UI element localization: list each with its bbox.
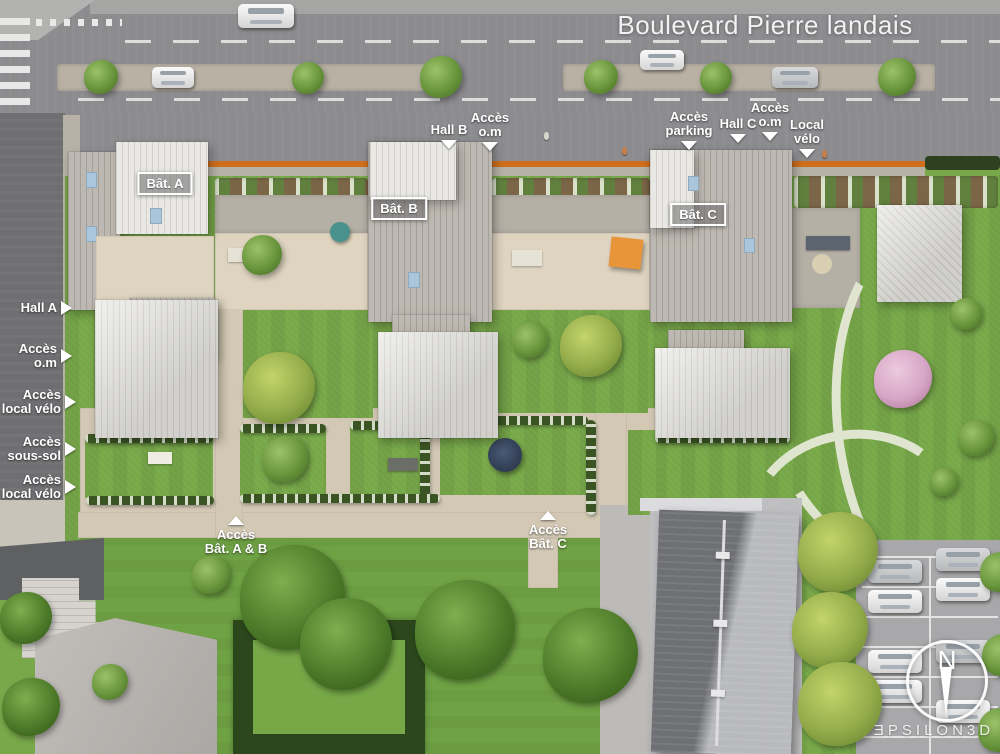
- arrow-right-icon: [61, 349, 72, 363]
- label-acces-om-a: Accèso.m: [0, 342, 72, 370]
- hedge: [586, 420, 596, 515]
- label-text: Accèso.m: [0, 342, 57, 370]
- path-vertical-west: [215, 305, 243, 538]
- label-text: Hall A: [0, 301, 57, 315]
- label-text: Accès: [529, 523, 567, 537]
- arrow-right-icon: [65, 442, 76, 456]
- arrow-up-icon: [228, 516, 244, 525]
- chimney: [713, 620, 727, 627]
- skylight: [150, 208, 162, 224]
- courtyard-bc-gravel: [492, 195, 650, 233]
- building-b-label: Bât. B: [371, 197, 427, 220]
- building-a-label: Bât. A: [137, 172, 192, 195]
- label-text: Local: [790, 118, 824, 132]
- label-text: Bât. A & B: [205, 542, 268, 556]
- skylight: [86, 172, 97, 188]
- label-text: Accèslocal vélo: [0, 473, 61, 501]
- site-plan: Boulevard Pierre landais Bât. A Bât. B B…: [0, 0, 1000, 754]
- label-acces-bat-ab: Accès Bât. A & B: [183, 516, 289, 556]
- flower-bed: [794, 176, 998, 208]
- crossing-dots: [36, 19, 122, 26]
- building-b-white-section: [370, 142, 456, 200]
- label-local-velo: Local vélo: [779, 118, 835, 158]
- parasol-navy: [488, 438, 522, 472]
- skylight: [408, 272, 420, 288]
- roof-hip-shading: [95, 300, 218, 438]
- car: [640, 50, 684, 70]
- label-text: Accès: [217, 528, 255, 542]
- crosswalk: [0, 18, 30, 110]
- lawn-patch: [85, 438, 213, 498]
- arrow-down-icon: [482, 142, 498, 151]
- pedestrian: [622, 147, 627, 155]
- tall-hedge: [925, 156, 1000, 170]
- arrow-down-icon: [681, 141, 697, 150]
- hedge: [240, 424, 326, 433]
- label-acces-local-velo-2: Accèslocal vélo: [0, 473, 76, 501]
- arrow-up-icon: [540, 511, 556, 520]
- label-text: Accèssous-sol: [0, 435, 61, 463]
- label-acces-sous-sol: Accèssous-sol: [0, 435, 76, 463]
- parasol-orange: [609, 236, 644, 269]
- car: [152, 67, 194, 88]
- roof-ridge: [715, 520, 726, 746]
- arrow-right-icon: [65, 480, 76, 494]
- building-a-lower-roof: [95, 300, 218, 438]
- street-name: Boulevard Pierre landais: [560, 10, 970, 41]
- compass-icon: N: [906, 640, 988, 722]
- label-text: vélo: [794, 132, 820, 146]
- label-hall-a: Hall A: [0, 301, 72, 315]
- slate-building-roof: [651, 510, 799, 754]
- picnic-table: [388, 458, 418, 471]
- parasol: [330, 222, 350, 242]
- courtyard-ab-terrace: [215, 233, 368, 310]
- label-acces-local-velo-1: Accèslocal vélo: [0, 388, 76, 416]
- label-text: Accès: [471, 111, 509, 125]
- label-text: Bât. C: [529, 537, 567, 551]
- terrace-a: [96, 236, 214, 302]
- dining-table: [512, 250, 542, 266]
- building-c-label: Bât. C: [670, 203, 726, 226]
- round-rug: [812, 254, 832, 274]
- lane-dash-lower: [78, 98, 1000, 101]
- arrow-down-icon: [441, 140, 457, 149]
- label-text: Accès: [670, 110, 708, 124]
- building-c-lower-roof: [655, 348, 790, 438]
- label-text: o.m: [478, 125, 501, 139]
- chimney: [711, 690, 725, 697]
- parked-car: [868, 590, 922, 613]
- outdoor-sofa: [806, 236, 850, 250]
- building-b-lower-roof: [378, 332, 498, 438]
- hedge: [240, 494, 440, 503]
- parked-car: [868, 560, 922, 583]
- parked-van: [238, 4, 294, 28]
- label-acces-om-b: Accès o.m: [462, 111, 518, 151]
- skylight: [744, 238, 755, 253]
- arrow-right-icon: [61, 301, 72, 315]
- hedge: [86, 496, 214, 505]
- label-text: Accès: [751, 101, 789, 115]
- label-text: Accèslocal vélo: [0, 388, 61, 416]
- lounge-chairs: [148, 452, 172, 464]
- label-acces-bat-c: Accès Bât. C: [500, 511, 596, 551]
- roof-hip-shading: [378, 332, 498, 438]
- chimney: [716, 552, 730, 559]
- arrow-down-icon: [799, 149, 815, 158]
- compass-needle: [940, 667, 952, 717]
- arrow-down-icon: [762, 132, 778, 141]
- roof-hip-shading: [655, 348, 790, 438]
- arrow-right-icon: [65, 395, 76, 409]
- pedestrian: [544, 132, 549, 140]
- car: [772, 67, 818, 88]
- watermark-logo: ƎPSILON3D: [872, 722, 996, 739]
- skylight: [688, 176, 699, 191]
